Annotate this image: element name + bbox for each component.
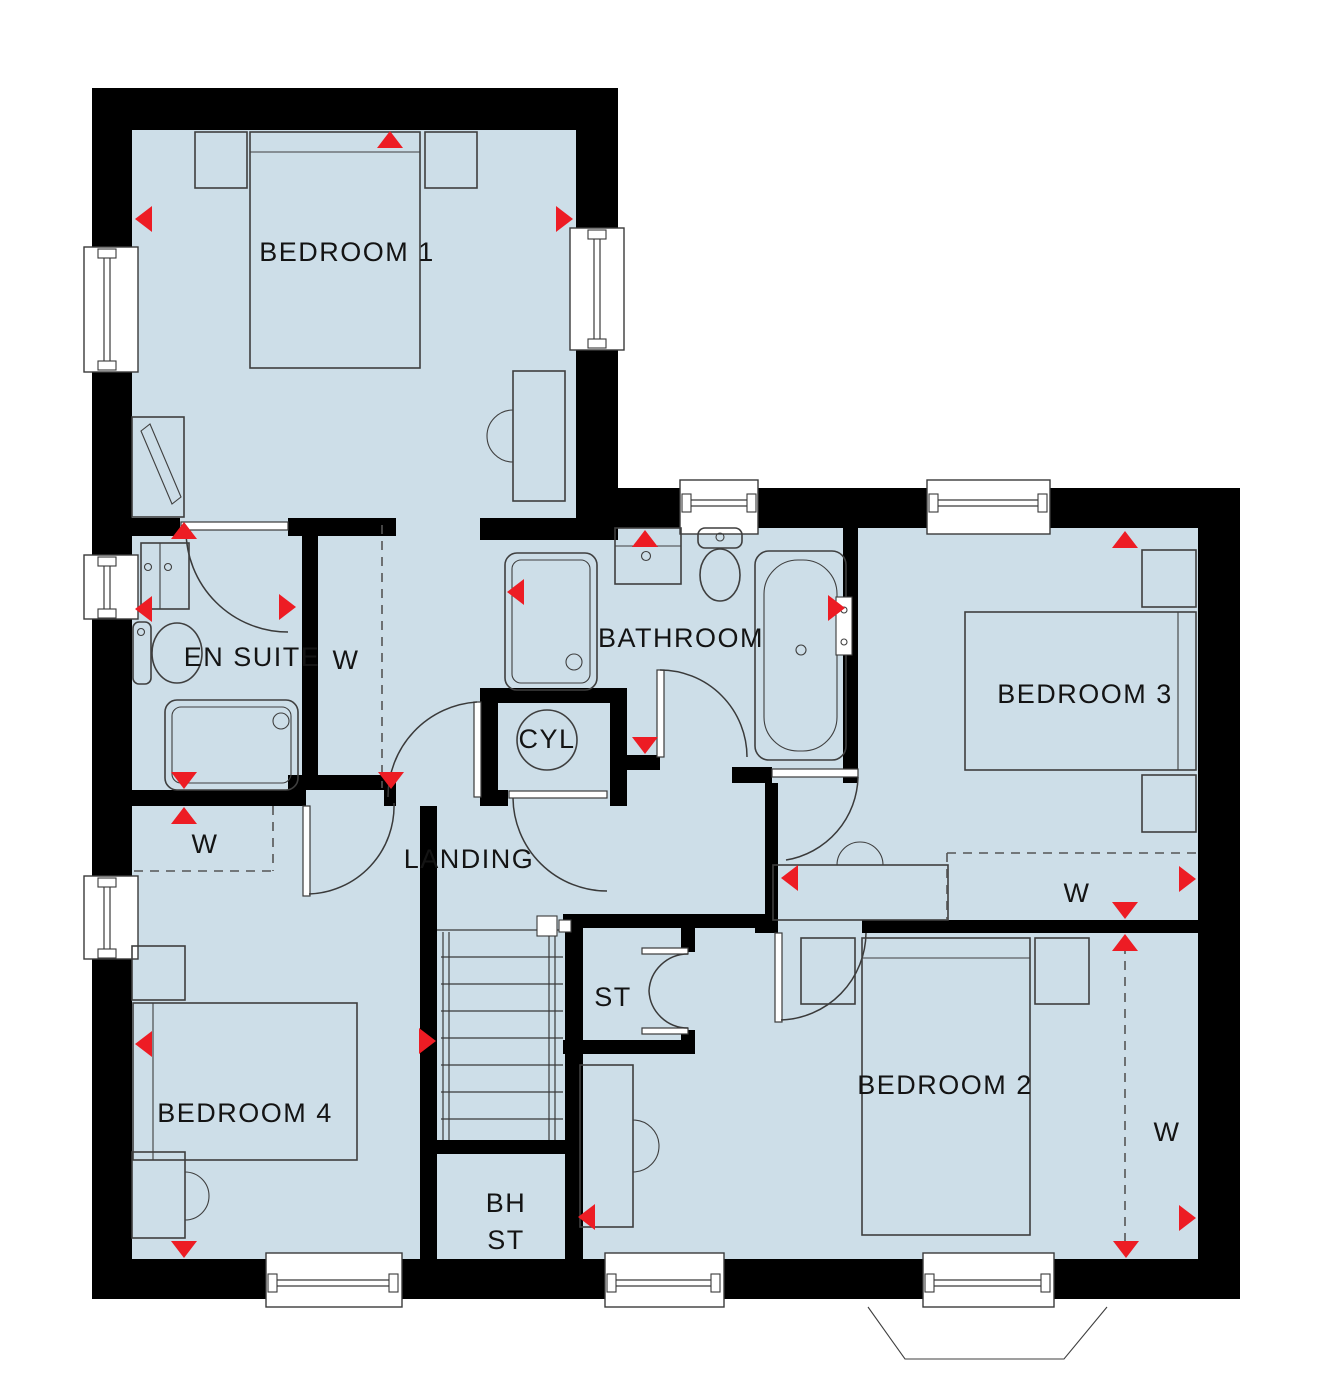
wall-segment — [132, 790, 306, 806]
wall-segment — [420, 1140, 577, 1154]
window — [680, 480, 758, 534]
wall-segment — [480, 518, 618, 540]
label-bedroom-2: BEDROOM 2 — [857, 1070, 1033, 1100]
wall-segment — [610, 688, 627, 806]
wall-segment — [563, 1040, 695, 1054]
label-wardrobe-bedroom-3: W — [1064, 878, 1091, 908]
label-wardrobe-bedroom-1: W — [333, 645, 360, 675]
wall-segment — [563, 914, 765, 928]
window — [84, 247, 138, 372]
label-en-suite: EN SUITE — [184, 642, 321, 672]
wall-segment — [288, 775, 396, 790]
wall-segment — [92, 88, 618, 130]
window — [84, 876, 138, 959]
wall-segment — [1198, 488, 1240, 1299]
floor-plan: BEDROOM 1EN SUITEWBATHROOMCYLBEDROOM 3WL… — [0, 0, 1326, 1391]
newel-post — [537, 916, 557, 936]
label-bedroom-3: BEDROOM 3 — [997, 679, 1173, 709]
label-bulkhead-store-line2: ST — [487, 1225, 525, 1255]
window — [266, 1253, 402, 1307]
wall-segment — [765, 783, 778, 933]
label-wardrobe-bedroom-4: W — [192, 829, 219, 859]
label-wardrobe-bedroom-2: W — [1154, 1117, 1181, 1147]
wall-segment — [480, 790, 508, 806]
label-bulkhead-store-line1: BH — [486, 1188, 527, 1218]
window — [605, 1253, 724, 1307]
wall-segment — [862, 920, 1198, 933]
wall-segment — [732, 767, 772, 783]
label-bedroom-4: BEDROOM 4 — [157, 1098, 333, 1128]
label-landing: LANDING — [404, 844, 535, 874]
wall-segment — [132, 518, 180, 536]
window — [927, 480, 1050, 534]
window — [570, 228, 624, 350]
bay-window-canopy — [868, 1307, 1107, 1359]
label-bedroom-1: BEDROOM 1 — [259, 237, 435, 267]
label-store: ST — [594, 982, 632, 1012]
label-cylinder-cupboard: CYL — [518, 724, 575, 754]
window — [84, 555, 138, 619]
wall-segment — [627, 755, 660, 770]
newel-post — [559, 920, 571, 932]
label-bathroom: BATHROOM — [598, 623, 764, 653]
